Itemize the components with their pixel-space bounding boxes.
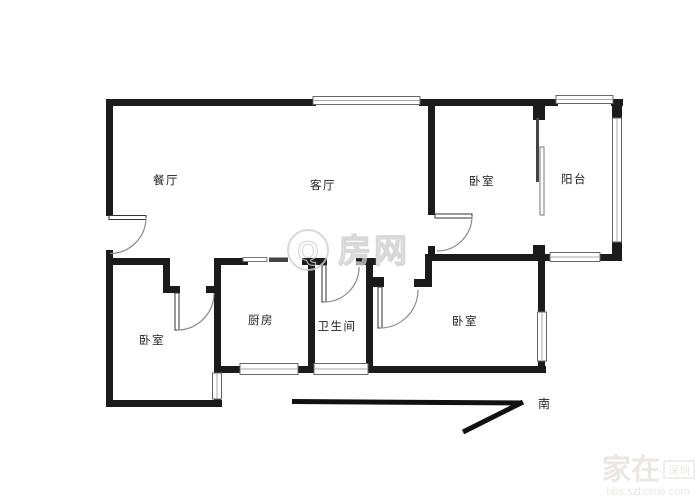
slide-track: [243, 258, 267, 262]
wall-bedroomleft-bottom: [106, 400, 222, 407]
wall-bedroomleft-top: [106, 258, 170, 265]
door-arc: [110, 218, 146, 254]
watermark-corner-brand: 家在: [602, 452, 660, 486]
watermark-q-letter: Q: [297, 236, 318, 266]
label-bedroom-right: 卧室: [452, 314, 478, 328]
wall-bedroomleft-door-hinge: [170, 286, 180, 293]
window-balcony-right: [613, 118, 622, 242]
wall-divider-top-stub: [533, 103, 545, 120]
wall-balcony-right-bottom: [612, 241, 622, 261]
label-dining: 餐厅: [153, 173, 179, 187]
window-bedroomright-right: [538, 312, 547, 361]
door-leaf: [435, 214, 472, 218]
door-bedroom-top: [435, 214, 472, 251]
door-bathroom: [322, 265, 359, 302]
label-bedroom-left: 卧室: [139, 333, 165, 347]
slide-panel: [269, 258, 288, 263]
wall-bedroomtop-left: [428, 105, 435, 215]
doors: [109, 118, 544, 330]
wall-bedroomtop-left-lower: [428, 246, 435, 261]
door-arc: [177, 293, 214, 330]
wall-bedroomleft-step: [163, 258, 170, 293]
door-leaf: [378, 287, 382, 328]
floorplan-drawing: 餐厅 客厅 卧室 阳台 卧室 厨房 卫生间 卧室 南 Q 房网 家在 深圳 bb…: [0, 0, 700, 501]
door-bedroom-left: [175, 293, 214, 330]
door-arc: [380, 290, 418, 328]
window-bedroomleft-right: [213, 373, 222, 399]
door-arc: [437, 216, 472, 251]
wall-bedroomright-right-upper: [538, 254, 545, 314]
door-leaf: [109, 216, 146, 220]
wall-left-upper: [106, 99, 113, 216]
window-bathroom-bottom: [314, 364, 368, 375]
door-bedroom-right: [378, 287, 418, 328]
label-south: 南: [538, 396, 550, 411]
floorplan-canvas: 餐厅 客厅 卧室 阳台 卧室 厨房 卫生间 卧室 南 Q 房网 家在 深圳 bb…: [0, 0, 700, 501]
sliding-door-kitchen: [243, 258, 288, 263]
window-kitchen-bottom: [240, 364, 298, 375]
slide-track: [540, 147, 544, 215]
door-arc: [324, 267, 359, 302]
label-bathroom: 卫生间: [318, 319, 357, 333]
watermark-center: Q 房网: [288, 230, 410, 270]
door-leaf: [322, 265, 326, 302]
window-living-top: [313, 97, 420, 105]
watermark-corner-url: bbs.szhome.com: [606, 486, 689, 498]
wall-bedroomleft-door-jamb: [206, 286, 221, 293]
compass-south-arrow: 南: [292, 396, 550, 432]
watermark-corner: 家在 深圳 bbs.szhome.com: [602, 452, 694, 498]
windows: [213, 96, 622, 400]
label-bedroom-top: 卧室: [469, 174, 495, 188]
wall-bathroom-left: [308, 258, 315, 372]
wall-left-lower: [106, 250, 113, 407]
sliding-door-balcony: [536, 118, 544, 215]
arrow-shaft: [292, 402, 522, 404]
wall-bedroomright-door-hinge: [366, 277, 384, 287]
door-entrance: [109, 216, 146, 254]
wall-bathroom-right: [366, 258, 373, 372]
window-balcony-top: [556, 96, 613, 104]
slide-panel: [536, 118, 539, 182]
door-leaf: [175, 293, 179, 330]
wall-top-left: [106, 99, 316, 106]
watermark-center-text: 房网: [338, 232, 410, 269]
arrow-barb: [463, 402, 523, 432]
label-kitchen: 厨房: [248, 314, 274, 327]
label-living: 客厅: [310, 178, 336, 192]
label-balcony: 阳台: [561, 172, 587, 186]
watermark-corner-badge: 深圳: [668, 464, 690, 477]
window-balcony-bottom: [550, 253, 600, 262]
